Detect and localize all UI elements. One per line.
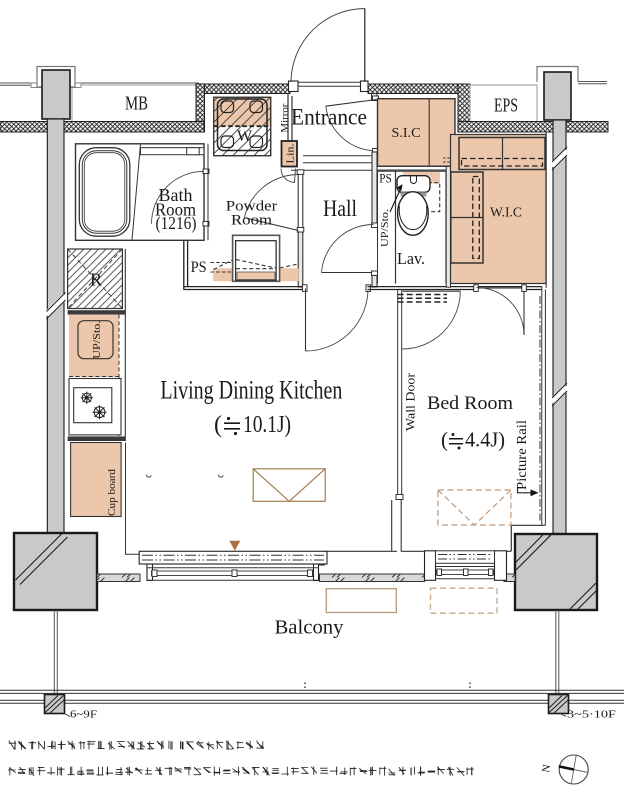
svg-text:Wall Door: Wall Door: [403, 372, 418, 431]
svg-text:PS: PS: [379, 172, 392, 186]
svg-text:(1216): (1216): [156, 213, 197, 234]
svg-text:(: (: [214, 412, 222, 438]
svg-text:Balcony: Balcony: [275, 617, 344, 639]
svg-text:PS: PS: [191, 259, 207, 276]
svg-text:EPS: EPS: [494, 95, 518, 117]
svg-text:W.I.C: W.I.C: [490, 204, 522, 219]
svg-text:R: R: [90, 270, 102, 290]
svg-text:Hall: Hall: [323, 196, 357, 222]
svg-text:3~5·10F: 3~5·10F: [567, 710, 616, 721]
svg-text:UP/Sto.: UP/Sto.: [91, 320, 103, 358]
svg-text:Room: Room: [231, 213, 273, 229]
svg-text:Lin.: Lin.: [286, 144, 297, 164]
svg-text:Living Dining Kitchen: Living Dining Kitchen: [160, 375, 342, 405]
svg-text:MB: MB: [125, 92, 148, 114]
svg-text:(: (: [441, 428, 448, 452]
svg-text:6~9F: 6~9F: [70, 710, 97, 721]
svg-text:W: W: [237, 128, 253, 145]
svg-text:S.I.C: S.I.C: [392, 126, 421, 141]
svg-text:Cup board: Cup board: [106, 468, 118, 516]
svg-text:Entrance: Entrance: [291, 105, 367, 130]
svg-text:Picture Rail: Picture Rail: [514, 420, 529, 490]
svg-text:Lav.: Lav.: [397, 249, 425, 268]
svg-text:UP/Sto.: UP/Sto.: [379, 209, 391, 247]
svg-text:4.4J): 4.4J): [465, 428, 505, 452]
svg-text:Bed Room: Bed Room: [427, 393, 513, 414]
svg-text:Mirror: Mirror: [279, 103, 291, 132]
svg-text:10.1J): 10.1J): [243, 412, 291, 438]
